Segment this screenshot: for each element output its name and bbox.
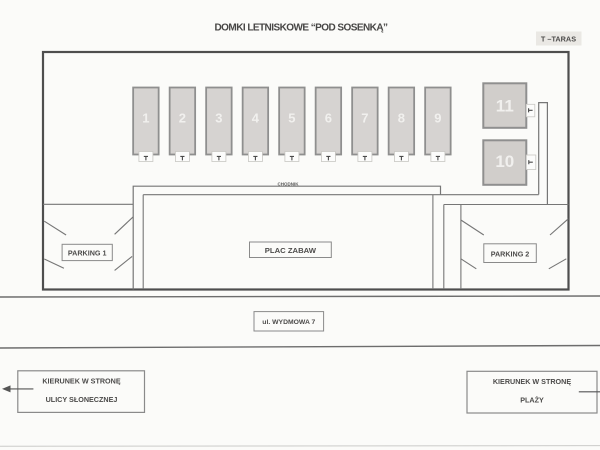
svg-text:KIERUNEK W STRONĘ: KIERUNEK W STRONĘ: [493, 377, 571, 386]
svg-text:10: 10: [495, 152, 514, 171]
svg-text:3: 3: [215, 111, 222, 126]
svg-text:T –TARAS: T –TARAS: [541, 35, 576, 44]
svg-text:1: 1: [142, 111, 149, 126]
svg-text:6: 6: [325, 111, 332, 126]
svg-text:5: 5: [288, 111, 295, 126]
svg-text:DOMKI LETNISKOWE “POD SOSENKĄ”: DOMKI LETNISKOWE “POD SOSENKĄ”: [215, 23, 389, 34]
svg-text:KIERUNEK W STRONĘ: KIERUNEK W STRONĘ: [42, 376, 120, 385]
svg-text:ul. WYDMOWA 7: ul. WYDMOWA 7: [262, 319, 315, 326]
svg-text:PARKING 2: PARKING 2: [491, 249, 530, 258]
svg-text:11: 11: [496, 97, 514, 116]
svg-text:7: 7: [361, 111, 368, 126]
svg-text:PARKING 1: PARKING 1: [68, 249, 107, 258]
svg-text:4: 4: [252, 111, 260, 126]
svg-text:2: 2: [179, 111, 186, 126]
svg-text:9: 9: [434, 111, 441, 126]
svg-text:CHODNIK: CHODNIK: [278, 181, 300, 186]
svg-text:ULICY SŁONECZNEJ: ULICY SŁONECZNEJ: [46, 395, 118, 404]
svg-text:PLAŻY: PLAŻY: [520, 396, 544, 405]
svg-text:8: 8: [398, 111, 405, 126]
svg-text:PLAC ZABAW: PLAC ZABAW: [265, 246, 317, 255]
